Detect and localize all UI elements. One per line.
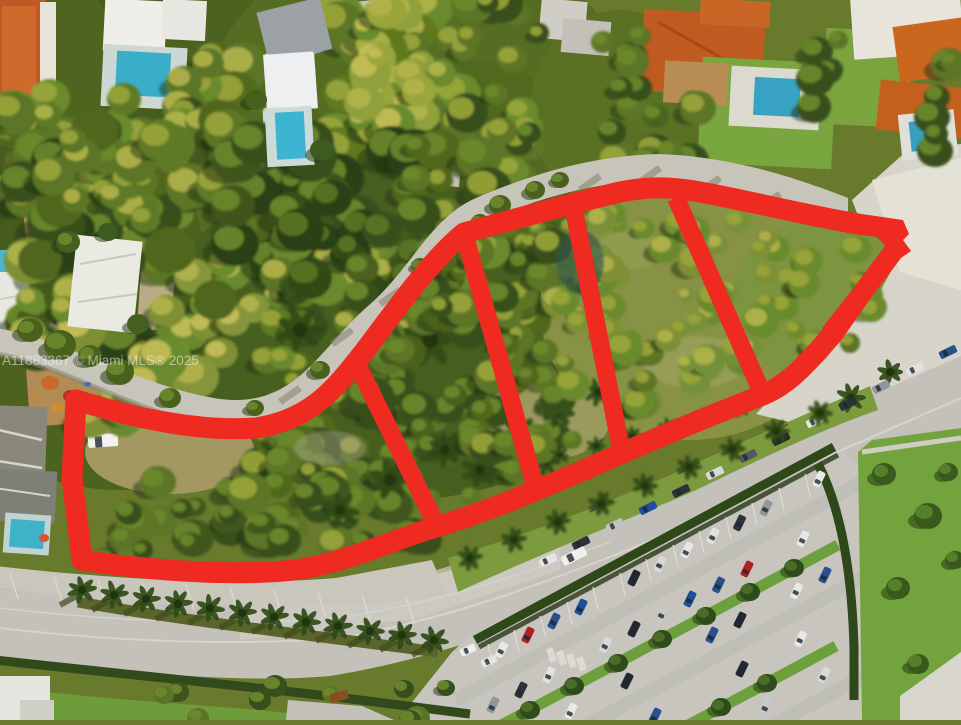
svg-text:A11883367 © Miami MLS® 2025: A11883367 © Miami MLS® 2025 <box>2 353 199 368</box>
